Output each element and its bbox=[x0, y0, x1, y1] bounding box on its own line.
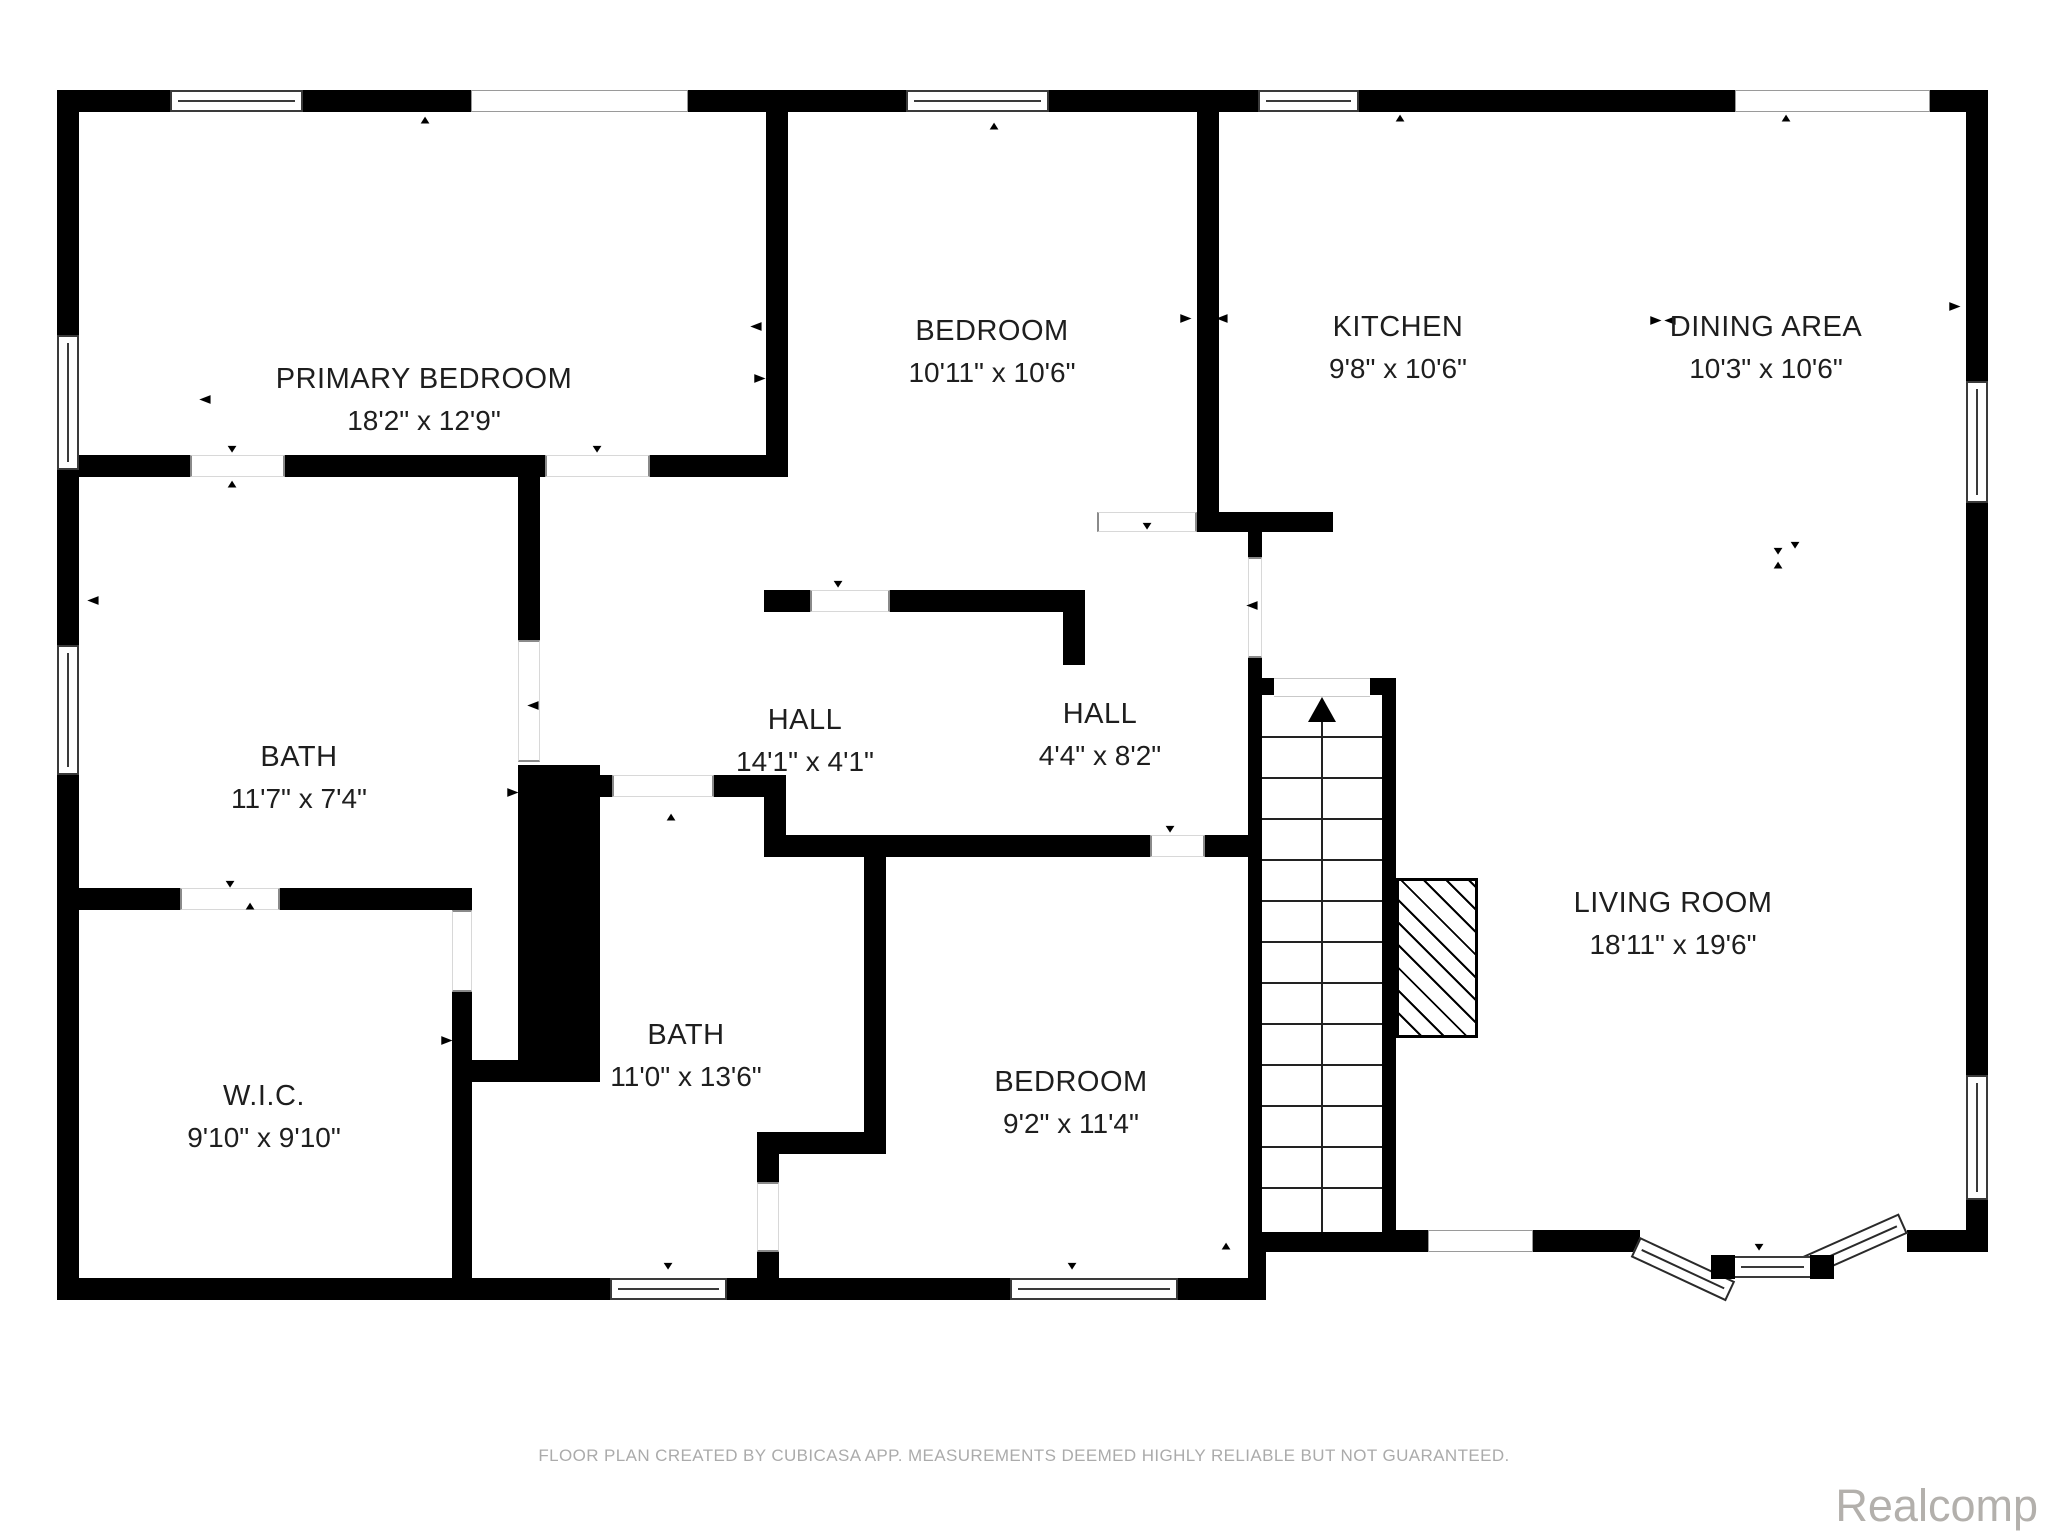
door-marker-left-icon: ◀ bbox=[199, 393, 211, 405]
wall bbox=[786, 835, 1150, 857]
door-opening bbox=[757, 1182, 779, 1252]
window-glass-line bbox=[618, 1288, 719, 1290]
wall bbox=[518, 765, 600, 1065]
room-dimensions: 10'11" x 10'6" bbox=[908, 357, 1075, 389]
stair-up-arrow-icon bbox=[1308, 697, 1336, 722]
room-dimensions: 11'7" x 7'4" bbox=[231, 783, 367, 815]
door-marker-up-icon: ▲ bbox=[987, 120, 1002, 132]
window-glass-line bbox=[1976, 389, 1978, 495]
window bbox=[57, 335, 79, 470]
wall bbox=[764, 590, 810, 612]
room-label: KITCHEN9'8" x 10'6" bbox=[1329, 311, 1467, 385]
wall bbox=[472, 1060, 600, 1082]
room-label: HALL14'1" x 4'1" bbox=[736, 704, 874, 778]
room-dimensions: 11'0" x 13'6" bbox=[610, 1061, 761, 1093]
room-name: PRIMARY BEDROOM bbox=[276, 363, 572, 396]
door-marker-right-icon: ▶ bbox=[1180, 312, 1192, 324]
room-name: BEDROOM bbox=[994, 1066, 1147, 1099]
door-marker-left-icon: ◀ bbox=[87, 594, 99, 606]
wall bbox=[1248, 532, 1262, 557]
room-dimensions: 9'10" x 9'10" bbox=[187, 1122, 341, 1154]
stair-landing bbox=[1274, 678, 1370, 697]
bay-window-jamb bbox=[1711, 1255, 1735, 1279]
window-glass-line bbox=[67, 653, 69, 767]
door-marker-left-icon: ◀ bbox=[1216, 312, 1228, 324]
room-dimensions: 10'3" x 10'6" bbox=[1670, 353, 1862, 385]
room-name: BEDROOM bbox=[908, 315, 1075, 348]
door-marker-up-icon: ▲ bbox=[225, 478, 240, 490]
staircase bbox=[1262, 695, 1382, 1232]
wall bbox=[1262, 678, 1274, 695]
room-dimensions: 18'2" x 12'9" bbox=[276, 405, 572, 437]
door-marker-up-icon: ▲ bbox=[1393, 112, 1408, 124]
wall bbox=[890, 590, 1085, 612]
window bbox=[170, 90, 303, 112]
wall bbox=[757, 1154, 779, 1182]
fireplace bbox=[1396, 878, 1478, 1038]
wall bbox=[1197, 512, 1333, 532]
stair-direction-line bbox=[1321, 721, 1323, 1232]
room-label: DINING AREA10'3" x 10'6" bbox=[1670, 311, 1862, 385]
room-dimensions: 14'1" x 4'1" bbox=[736, 746, 874, 778]
bay-window-center bbox=[1733, 1256, 1812, 1278]
wall bbox=[714, 775, 786, 797]
window bbox=[906, 90, 1049, 112]
wall bbox=[757, 1252, 779, 1278]
door-marker-down-icon: ▼ bbox=[831, 578, 846, 590]
door-marker-up-icon: ▲ bbox=[664, 811, 679, 823]
room-dimensions: 18'11" x 19'6" bbox=[1574, 929, 1773, 961]
door-marker-left-icon: ◀ bbox=[527, 699, 539, 711]
door-marker-right-icon: ▶ bbox=[1650, 314, 1662, 326]
door-marker-down-icon: ▼ bbox=[1788, 539, 1803, 551]
door-opening bbox=[1150, 835, 1205, 857]
window-glass-line bbox=[1976, 1083, 1978, 1192]
door-marker-down-icon: ▼ bbox=[1065, 1260, 1080, 1272]
window bbox=[1966, 1075, 1988, 1200]
door-opening bbox=[190, 455, 285, 477]
wall bbox=[57, 455, 788, 477]
room-label: W.I.C.9'10" x 9'10" bbox=[187, 1080, 341, 1154]
room-name: W.I.C. bbox=[187, 1080, 341, 1113]
door-marker-down-icon: ▼ bbox=[1163, 823, 1178, 835]
realcomp-watermark: Realcomp bbox=[1835, 1480, 2038, 1532]
wall bbox=[1205, 835, 1250, 857]
door-marker-up-icon: ▲ bbox=[243, 900, 258, 912]
door-opening bbox=[612, 775, 714, 797]
door-marker-down-icon: ▼ bbox=[1752, 1241, 1767, 1253]
door-marker-down-icon: ▼ bbox=[1771, 545, 1786, 557]
wall bbox=[1382, 678, 1396, 1232]
room-dimensions: 4'4" x 8'2" bbox=[1039, 740, 1161, 772]
room-dimensions: 9'2" x 11'4" bbox=[994, 1108, 1147, 1140]
wall bbox=[757, 1132, 886, 1154]
door-marker-up-icon: ▲ bbox=[1771, 559, 1786, 571]
wall bbox=[518, 477, 540, 640]
window-glass-line bbox=[1266, 100, 1351, 102]
door-marker-up-icon: ▲ bbox=[1779, 112, 1794, 124]
wall bbox=[452, 992, 472, 1278]
door-marker-down-icon: ▼ bbox=[223, 878, 238, 890]
door-marker-down-icon: ▼ bbox=[661, 1260, 676, 1272]
door-marker-right-icon: ▶ bbox=[507, 786, 519, 798]
room-name: HALL bbox=[736, 704, 874, 737]
window-glass-line bbox=[178, 100, 295, 102]
disclaimer-text: FLOOR PLAN CREATED BY CUBICASA APP. MEAS… bbox=[0, 1446, 2048, 1466]
wall bbox=[1063, 590, 1085, 665]
room-name: LIVING ROOM bbox=[1574, 887, 1773, 920]
wall bbox=[1248, 1252, 1266, 1300]
window-glass-line bbox=[67, 343, 69, 462]
room-label: BATH11'0" x 13'6" bbox=[610, 1019, 761, 1093]
room-name: BATH bbox=[610, 1019, 761, 1052]
door-marker-left-icon: ◀ bbox=[750, 320, 762, 332]
floor-plan-canvas: FLOOR PLAN CREATED BY CUBICASA APP. MEAS… bbox=[0, 0, 2048, 1536]
wall bbox=[1248, 658, 1262, 1232]
door-marker-right-icon: ▶ bbox=[1949, 300, 1961, 312]
wall bbox=[1907, 1230, 1988, 1252]
room-label: BEDROOM9'2" x 11'4" bbox=[994, 1066, 1147, 1140]
room-label: HALL4'4" x 8'2" bbox=[1039, 698, 1161, 772]
door-marker-right-icon: ▶ bbox=[754, 372, 766, 384]
door-marker-right-icon: ▶ bbox=[441, 1034, 453, 1046]
window bbox=[1428, 1230, 1533, 1252]
window bbox=[471, 90, 688, 112]
window bbox=[1735, 90, 1930, 112]
door-marker-down-icon: ▼ bbox=[1140, 520, 1155, 532]
room-label: LIVING ROOM18'11" x 19'6" bbox=[1574, 887, 1773, 961]
room-name: HALL bbox=[1039, 698, 1161, 731]
room-label: BATH11'7" x 7'4" bbox=[231, 741, 367, 815]
door-marker-down-icon: ▼ bbox=[590, 443, 605, 455]
wall bbox=[1370, 678, 1382, 695]
room-label: BEDROOM10'11" x 10'6" bbox=[908, 315, 1075, 389]
window-glass-line bbox=[1741, 1266, 1804, 1268]
window bbox=[1010, 1278, 1178, 1300]
wall bbox=[533, 775, 612, 797]
door-marker-left-icon: ◀ bbox=[1246, 599, 1258, 611]
wall bbox=[864, 857, 886, 1132]
window bbox=[57, 645, 79, 775]
room-label: PRIMARY BEDROOM18'2" x 12'9" bbox=[276, 363, 572, 437]
door-marker-up-icon: ▲ bbox=[418, 114, 433, 126]
window bbox=[1258, 90, 1359, 112]
bay-window-jamb bbox=[1810, 1255, 1834, 1279]
door-marker-up-icon: ▲ bbox=[1219, 1240, 1234, 1252]
door-opening bbox=[180, 888, 280, 910]
door-opening bbox=[810, 590, 890, 612]
door-opening bbox=[452, 910, 472, 992]
wall bbox=[764, 797, 786, 857]
room-name: KITCHEN bbox=[1329, 311, 1467, 344]
window-glass-line bbox=[1018, 1288, 1170, 1290]
window-glass-line bbox=[914, 100, 1041, 102]
window bbox=[1966, 381, 1988, 503]
room-name: DINING AREA bbox=[1670, 311, 1862, 344]
door-marker-down-icon: ▼ bbox=[225, 443, 240, 455]
window bbox=[610, 1278, 727, 1300]
room-dimensions: 9'8" x 10'6" bbox=[1329, 353, 1467, 385]
door-opening bbox=[545, 455, 650, 477]
room-name: BATH bbox=[231, 741, 367, 774]
wall bbox=[766, 112, 788, 477]
wall bbox=[1248, 1232, 1428, 1252]
